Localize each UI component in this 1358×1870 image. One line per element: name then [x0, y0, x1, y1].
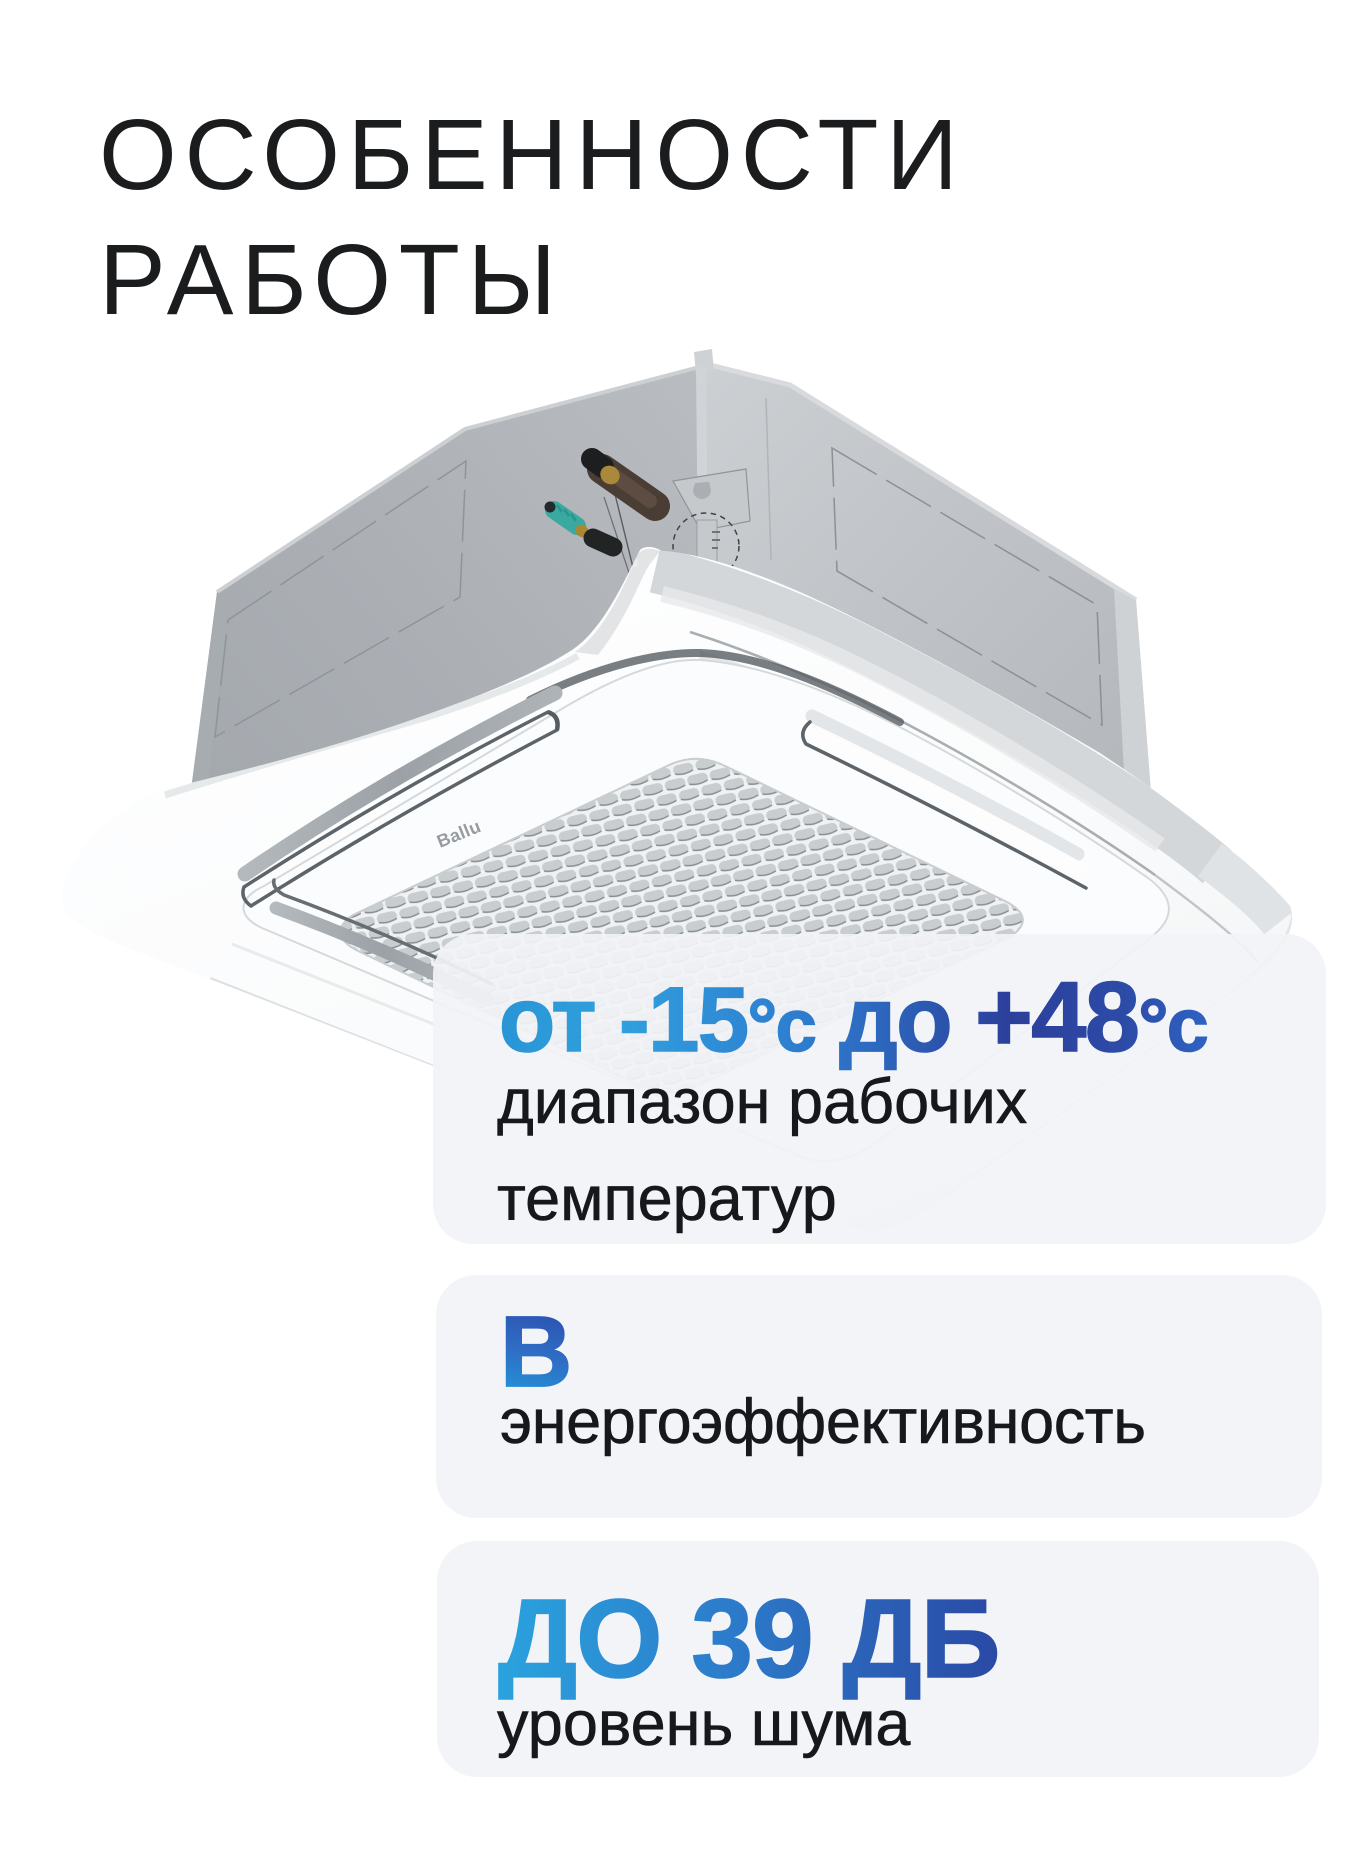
svg-text:ДО 39 ДБ: ДО 39 ДБ: [498, 1577, 999, 1700]
